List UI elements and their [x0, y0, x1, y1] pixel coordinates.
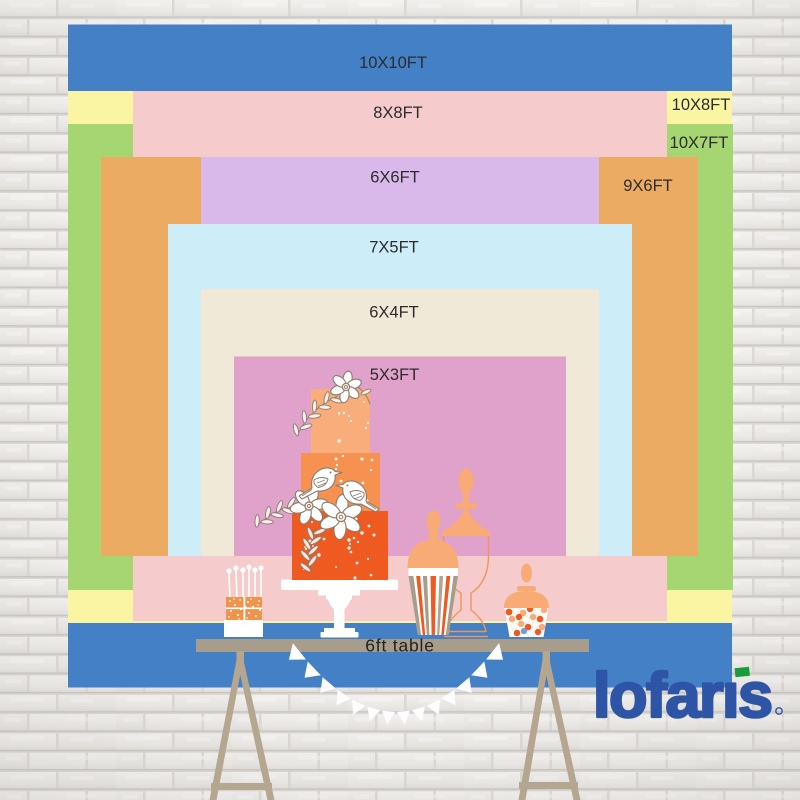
svg-text:7X5FT: 7X5FT — [369, 239, 419, 257]
svg-text:6X4FT: 6X4FT — [369, 304, 419, 322]
svg-text:8X8FT: 8X8FT — [373, 104, 423, 122]
svg-text:10X10FT: 10X10FT — [359, 54, 427, 72]
svg-text:6ft table: 6ft table — [365, 636, 434, 656]
svg-text:10X8FT: 10X8FT — [672, 96, 731, 114]
svg-text:10X7FT: 10X7FT — [670, 134, 729, 152]
svg-text:9X6FT: 9X6FT — [623, 177, 673, 195]
svg-text:6X6FT: 6X6FT — [370, 169, 420, 187]
svg-text:5X3FT: 5X3FT — [370, 366, 420, 384]
